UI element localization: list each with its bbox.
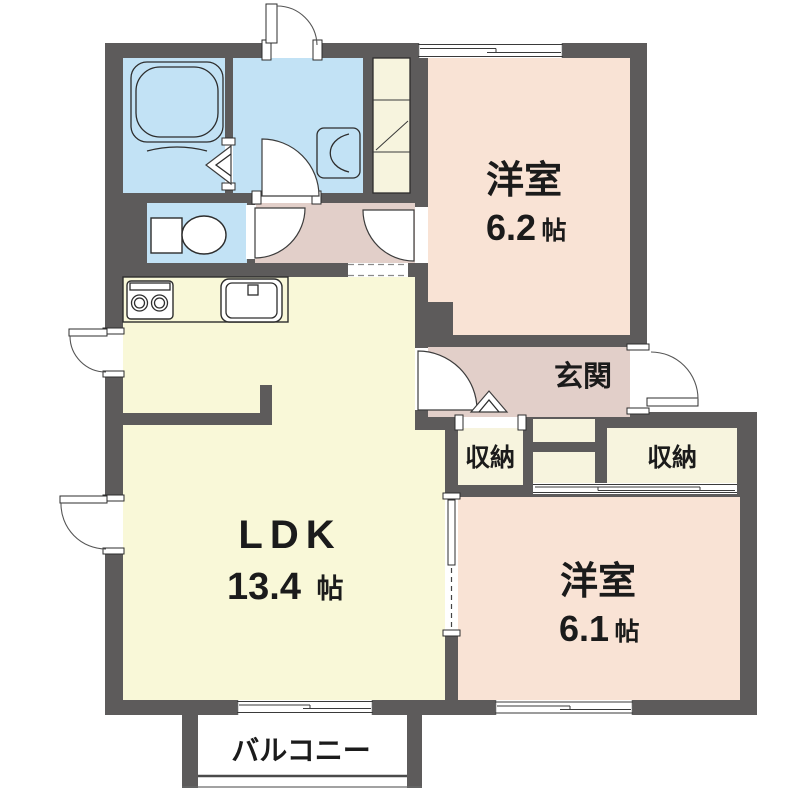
- floor-plan: 洋室 6.2 帖 玄関 収納 収納 LDK 13.4 帖 洋室 6.1 帖 バル…: [0, 0, 800, 800]
- ldk-floor: [123, 277, 445, 700]
- kitchen-counter: [123, 277, 288, 322]
- tall-cabinet: [373, 58, 410, 193]
- shoe-compartment-lower: [533, 452, 595, 483]
- balcony-label: バルコニー: [231, 735, 370, 766]
- hall-ldk-open-boundary: [348, 263, 408, 277]
- floor-plan-canvas: 洋室 6.2 帖 玄関 収納 収納 LDK 13.4 帖 洋室 6.1 帖 バル…: [0, 0, 800, 800]
- bedroom-top-size: 6.2: [486, 207, 536, 248]
- balcony-left-wall: [182, 712, 198, 788]
- storage-right-label: 収納: [647, 443, 697, 472]
- front-door: [627, 344, 698, 414]
- kitchen-partition-wall: [123, 413, 272, 425]
- entrance-label: 玄関: [554, 359, 612, 393]
- toilet: [151, 216, 226, 254]
- window-bedroom-top: [418, 43, 563, 58]
- window-ldk-balcony: [237, 700, 373, 715]
- bedroom-bottom-label: 洋室: [560, 560, 636, 603]
- bedroom-bottom-size-unit: 帖: [614, 618, 639, 646]
- left-door-upper: [69, 328, 124, 377]
- shoe-compartment-upper: [533, 419, 595, 442]
- bedroom-bottom-sliding-door: [443, 493, 460, 636]
- window-bedroom-bottom: [495, 700, 633, 715]
- bedroom-top-label: 洋室: [486, 159, 562, 202]
- kitchen-partition-stub: [260, 385, 272, 425]
- bedroom-bottom-size: 6.1: [559, 608, 609, 649]
- kitchen-sink: [221, 279, 282, 322]
- bedroom-top-size-unit: 帖: [541, 217, 566, 245]
- storage-left-label: 収納: [465, 443, 515, 472]
- closet-sliding-doors: [533, 483, 737, 494]
- storage-left-opening: [455, 415, 526, 430]
- bathroom-floor: [123, 58, 225, 193]
- left-door-lower: [60, 495, 124, 554]
- ldk-size-unit: 帖: [317, 574, 344, 604]
- service-door-top: [262, 4, 322, 60]
- ldk-size: 13.4: [227, 566, 301, 608]
- ldk-label: LDK: [238, 513, 341, 557]
- kitchen-stove: [127, 281, 173, 319]
- balcony-right-wall: [407, 712, 422, 788]
